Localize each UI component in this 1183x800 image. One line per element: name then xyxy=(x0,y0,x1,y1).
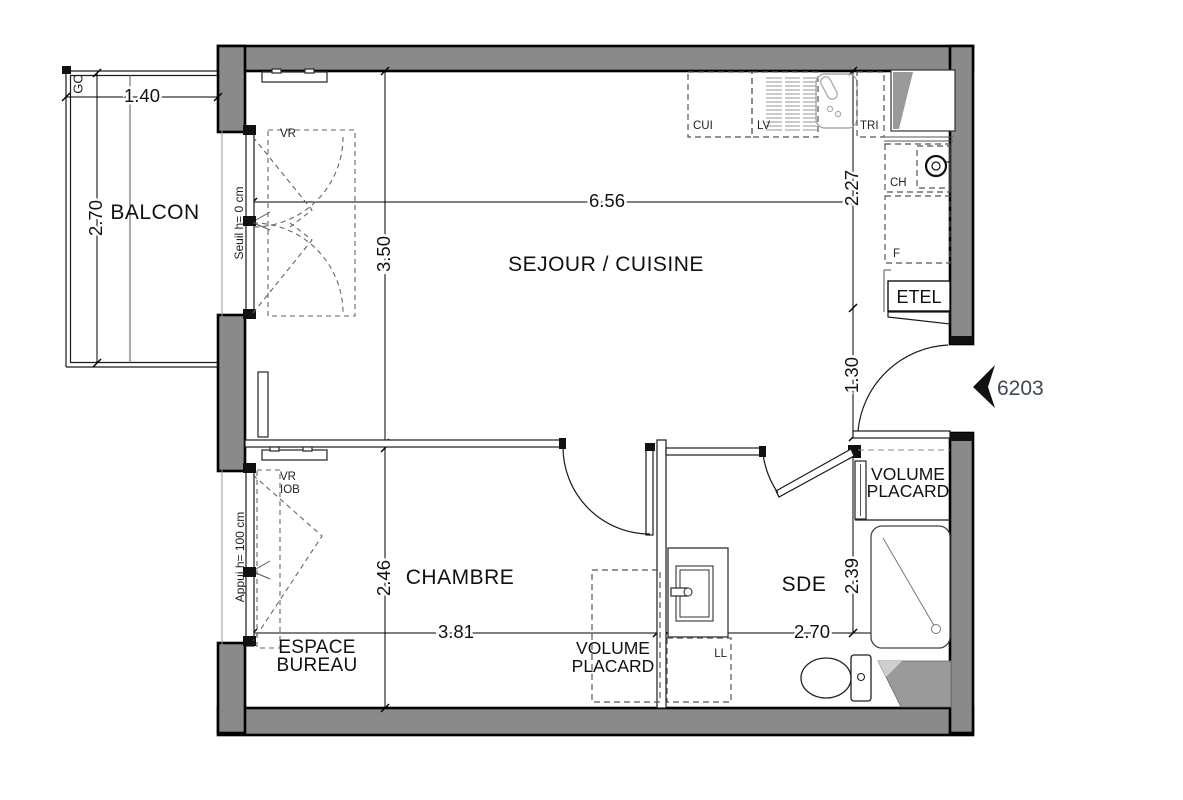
floor-plan: GC BALCON 1.40 2.70 6.56 3.50 2.27 1.30 … xyxy=(0,0,1183,800)
entry-closet-label-2: PLACARD xyxy=(867,481,950,501)
dim-shower-room-width: 2.70 xyxy=(794,621,830,642)
water-heater-label: CH xyxy=(890,177,907,189)
waste-sorting-label: TRI xyxy=(860,120,879,132)
dim-living-depth: 3.50 xyxy=(373,236,394,272)
kitchen-unit-label: CUI xyxy=(693,120,713,132)
sde-door-leaf xyxy=(776,449,854,497)
guardrail-corner xyxy=(62,66,71,74)
shutter-label: VR xyxy=(280,471,296,483)
dim-bedroom-depth: 2.46 xyxy=(373,560,394,596)
sill-height-label: Appui h= 100 cm xyxy=(233,512,247,602)
shutter-label: VR xyxy=(280,128,296,140)
window-frame xyxy=(246,466,254,646)
panel-base xyxy=(888,312,950,324)
window-reservation xyxy=(257,470,280,648)
dim-entry-width: 1.30 xyxy=(841,357,862,393)
wall-bedroom-sde xyxy=(657,440,666,708)
dim-kitchen-depth: 2.27 xyxy=(841,170,862,206)
dim-bedroom-width: 3.81 xyxy=(438,621,474,642)
wc-bowl xyxy=(801,658,851,698)
wall-living-bedroom xyxy=(245,440,563,447)
dishwasher-label: LV xyxy=(757,120,771,132)
technical-fixtures: CH F ETEL xyxy=(884,70,955,324)
electrical-panel-label: ETEL xyxy=(896,287,941,307)
bedroom-fittings: VOLUME PLACARD xyxy=(572,570,660,702)
wall-left-upper xyxy=(218,46,245,132)
dim-living-width: 6.56 xyxy=(589,190,625,211)
shower-drain xyxy=(932,625,941,634)
entry-door-swing xyxy=(858,345,948,431)
fridge-label: F xyxy=(893,248,900,260)
dishwasher-rack xyxy=(803,76,817,132)
bedroom-window: VR IOB Appui h= 100 cm xyxy=(222,463,322,648)
room-label-bedroom: CHAMBRE xyxy=(406,566,515,589)
wall-end-cap xyxy=(950,336,973,344)
unit-number: 6203 xyxy=(997,377,1044,400)
water-heater-icon xyxy=(926,156,946,176)
wc-tank xyxy=(851,655,871,701)
dim-shower-room-depth: 2.39 xyxy=(841,558,862,594)
dimensions: 1.40 2.70 6.56 3.50 2.27 1.30 2.46 2.39 … xyxy=(62,67,949,712)
faucet-icon xyxy=(819,75,839,101)
room-label-living-kitchen: SEJOUR / CUISINE xyxy=(508,253,704,276)
shower-room: LL xyxy=(667,526,951,707)
bedroom-closet-label-2: PLACARD xyxy=(572,656,655,676)
room-label-sde: SDE xyxy=(782,573,827,596)
entry-arrow-icon xyxy=(973,365,995,408)
sill-height-label: Seuil h= 0 cm xyxy=(232,186,246,259)
dim-balcony-width: 1.40 xyxy=(124,85,160,106)
doors xyxy=(563,345,948,535)
guardrail-label: GC xyxy=(70,74,85,94)
room-label-balcony: BALCON xyxy=(110,201,199,224)
radiator xyxy=(258,372,268,437)
wall-entry-closet xyxy=(853,431,950,438)
bedroom-door-swing xyxy=(563,447,650,534)
dishwasher-rack xyxy=(785,76,800,132)
wall-sde-living xyxy=(666,448,763,455)
kitchen-sink xyxy=(816,74,857,128)
wall-bottom xyxy=(218,708,973,735)
wall-left-lower xyxy=(218,643,245,733)
balcony-french-window: VR Seuil h= 0 cm xyxy=(222,125,355,319)
wall-right-lower xyxy=(950,433,973,733)
bedroom-closet-label-1: VOLUME xyxy=(576,638,650,658)
floor-plan-svg: GC BALCON 1.40 2.70 6.56 3.50 2.27 1.30 … xyxy=(0,0,1183,800)
shutter-label-2: IOB xyxy=(280,484,300,496)
bedroom-door-leaf xyxy=(646,450,653,535)
office-area-label-2: BUREAU xyxy=(277,655,358,676)
sde-door-swing xyxy=(763,454,778,493)
bedroom-closet-box xyxy=(592,570,660,702)
dim-balcony-depth: 2.70 xyxy=(85,200,106,236)
room-labels: SEJOUR / CUISINE CHAMBRE SDE ESPACE BURE… xyxy=(277,253,827,676)
washing-machine-label: LL xyxy=(714,648,727,660)
wall-left-middle xyxy=(218,315,245,471)
wall-top xyxy=(218,46,973,71)
wall-end-cap xyxy=(950,433,973,441)
